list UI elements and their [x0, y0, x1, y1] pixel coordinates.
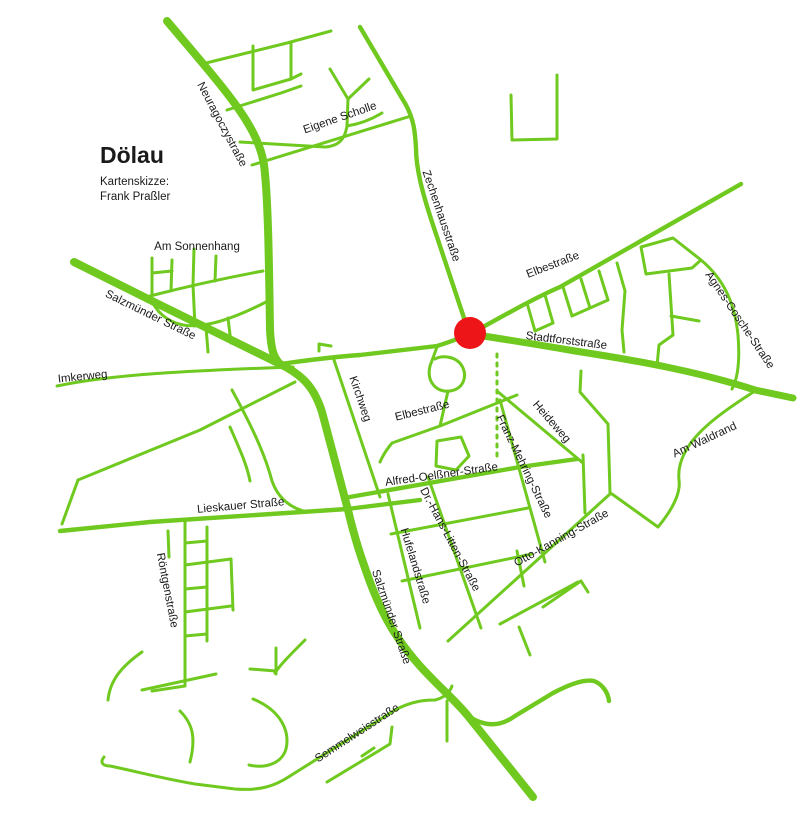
road-segment — [612, 391, 755, 527]
road-segment — [275, 640, 305, 673]
street-label: Semmelweisstraße — [313, 702, 402, 765]
road-segment — [330, 69, 348, 99]
map-title-block: Dölau Kartenskizze: Frank Praßler — [100, 142, 170, 203]
road-segment — [519, 627, 530, 655]
road-segment — [152, 271, 172, 273]
street-label: Elbestraße — [525, 250, 581, 281]
road-segment — [78, 382, 295, 480]
road-segment — [468, 681, 609, 725]
road-segment — [622, 291, 625, 352]
road-segment — [583, 455, 585, 513]
road-segment — [563, 287, 572, 316]
road-segment — [657, 335, 673, 366]
road-segment — [193, 249, 194, 285]
street-label: Salzmünder Straße — [369, 568, 413, 666]
road-segment — [202, 31, 331, 64]
road-segment — [500, 582, 578, 624]
road-segment — [581, 279, 590, 308]
street-label: Röntgenstraße — [154, 552, 180, 629]
road-segment — [185, 634, 207, 636]
road-segment — [230, 427, 250, 481]
road-segment — [348, 79, 369, 99]
road-segment — [102, 686, 452, 789]
road-segment — [360, 27, 468, 330]
road-segment — [185, 541, 207, 543]
road-segment — [671, 316, 699, 321]
street-label: Otto-Kanning-Straße — [512, 507, 611, 569]
road-segment — [572, 300, 608, 316]
road-segment — [62, 480, 78, 524]
street-label: Imkerweg — [57, 368, 108, 385]
road-segment — [231, 559, 233, 610]
street-label: Neuragoczystraße — [194, 80, 249, 169]
map-title: Dölau — [100, 142, 164, 168]
road-segment — [232, 390, 307, 512]
road-segment — [511, 75, 557, 140]
road-segment — [470, 334, 793, 398]
road-segment — [617, 263, 625, 291]
road-segment — [599, 271, 608, 300]
road-segment — [535, 323, 553, 331]
location-marker-dot — [454, 317, 486, 349]
road-segment — [249, 699, 287, 766]
street-label: Hufelandstraße — [398, 527, 432, 606]
road-segment — [185, 587, 207, 589]
map-subtitle-line2: Frank Praßler — [100, 191, 170, 203]
map-canvas: NeuragoczystraßeEigene ScholleZechenhaus… — [0, 0, 800, 833]
street-label: Kirchweg — [346, 375, 373, 424]
road-segment — [215, 256, 216, 281]
road-segment — [641, 238, 701, 274]
road-segment — [543, 581, 588, 607]
road-segment — [108, 652, 142, 700]
road-segment — [150, 271, 263, 296]
road-segment — [180, 711, 193, 762]
road-segment — [545, 295, 553, 323]
road-segment — [669, 274, 673, 335]
road-segment — [429, 357, 464, 391]
street-label: Am Sonnenhang — [154, 241, 240, 253]
road-segment — [250, 669, 276, 671]
road-segment — [171, 260, 172, 291]
road-segment — [319, 344, 331, 351]
road-segment — [168, 531, 169, 557]
road-segment — [391, 508, 528, 534]
map-subtitle-line1: Kartenskizze: — [100, 176, 169, 188]
road-segment — [430, 347, 437, 366]
road-segment — [280, 334, 470, 364]
road-segment — [527, 303, 535, 331]
street-label: Alfred-Oelßner-Straße — [384, 461, 498, 489]
